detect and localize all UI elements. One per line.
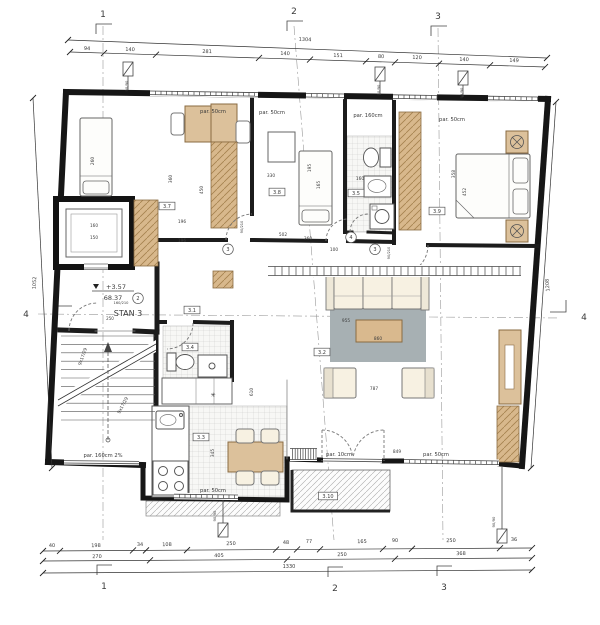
elevator-shaft xyxy=(56,199,132,268)
dim-bottom: 34 xyxy=(137,542,143,548)
wardrobe xyxy=(497,406,519,462)
room-tag: 3.5 xyxy=(352,191,360,197)
window-label: par. 50cm xyxy=(439,117,465,123)
dim-interior: 330 xyxy=(267,173,275,179)
dim-bottom: 40 xyxy=(49,543,55,549)
balcony-floor xyxy=(292,470,390,511)
dresser xyxy=(268,132,295,162)
door-size: 90/210 xyxy=(387,246,391,259)
sofa-armrest xyxy=(421,276,429,310)
room-tag: 3.9 xyxy=(433,209,441,215)
dim-top: 281 xyxy=(202,49,212,55)
apartment-area: 68.37 xyxy=(104,294,123,302)
door-number: 4 xyxy=(349,235,352,241)
elevator-dim: 160 xyxy=(90,223,98,228)
dim-top: 151 xyxy=(333,53,343,59)
elevator-dim: 150 xyxy=(90,235,98,240)
grid-axis-top-2: 2 xyxy=(291,7,297,17)
chair xyxy=(236,471,254,485)
room-tag: 3.3 xyxy=(197,435,205,441)
dim-interior: 358 xyxy=(451,170,457,178)
door-number: 2 xyxy=(136,296,139,302)
room-tag: 3.8 xyxy=(273,190,281,196)
stair-label: 9x17/29 xyxy=(77,347,89,366)
dim-top: 140 xyxy=(280,51,290,57)
dim-interior: 360 xyxy=(168,175,174,183)
room-tag: 3.4 xyxy=(186,345,194,351)
dim-bottom: 198 xyxy=(91,543,101,549)
dim-bottom: 77 xyxy=(306,539,312,545)
dimension-line xyxy=(43,570,532,573)
shower xyxy=(198,355,227,377)
dim-interior: 196 xyxy=(178,238,186,244)
dim-bottom2: 250 xyxy=(337,552,347,558)
dim-interior: 955 xyxy=(342,318,350,324)
window-size: 90/90 xyxy=(376,84,381,96)
exterior-walls xyxy=(48,92,548,500)
window-size: 90/90 xyxy=(212,510,217,522)
bed xyxy=(299,151,332,225)
dim-interior: 787 xyxy=(370,386,378,392)
bench xyxy=(213,271,233,288)
grid-axis-left-4: 4 xyxy=(23,310,29,320)
dim-interior: 160 xyxy=(356,176,364,182)
dim-bottom: 250 xyxy=(226,541,236,547)
dim-interior: 860 xyxy=(374,336,382,342)
dim-bottom: 90 xyxy=(392,538,398,544)
dim-bottom: 250 xyxy=(446,538,456,544)
double-bed xyxy=(456,154,530,218)
dim-bottom2: 368 xyxy=(456,551,466,557)
chair xyxy=(261,429,279,443)
dim-interior: 100 xyxy=(330,247,338,253)
wardrobe xyxy=(211,142,237,228)
room-tag: 3.1 xyxy=(188,308,196,314)
dim-top-total: 1304 xyxy=(299,37,312,43)
window-label: par. 160cm 2% xyxy=(83,453,122,459)
chair xyxy=(236,121,250,143)
room-tag: 3.7 xyxy=(163,204,171,210)
dim-interior: 165 xyxy=(316,181,322,189)
door-arc xyxy=(69,303,97,331)
dining-table xyxy=(228,442,283,472)
dim-bottom: 36 xyxy=(511,537,517,543)
dim-bottom: 165 xyxy=(357,539,367,545)
sofa-cushion xyxy=(363,276,392,309)
cooktop xyxy=(153,461,188,495)
dim-top: 140 xyxy=(459,57,469,63)
window-label: par. 50cm xyxy=(200,488,226,494)
dim-interior: 452 xyxy=(462,188,468,196)
grid-axis-bottom-3: 3 xyxy=(441,583,447,593)
floor-plan-canvas: 1231234413041330105212089414028114015180… xyxy=(0,0,600,625)
wardrobe xyxy=(134,200,158,266)
balcony-door-arc xyxy=(353,430,384,461)
door-number: 3 xyxy=(373,247,376,253)
grid-axis-right-4: 4 xyxy=(581,313,587,323)
dim-interior: 849 xyxy=(393,449,401,455)
chair xyxy=(261,471,279,485)
toilet-tank xyxy=(167,353,176,371)
grid-axis-bottom-1: 1 xyxy=(101,582,107,592)
room-tag: 3.10 xyxy=(322,494,333,500)
sofa-cushion xyxy=(392,276,421,309)
toilet xyxy=(176,355,194,370)
toilet xyxy=(364,148,379,167)
chair xyxy=(236,429,254,443)
chair xyxy=(171,113,184,135)
dim-top: 149 xyxy=(509,58,519,64)
dim-interior: 450 xyxy=(199,186,205,194)
sofa-cushion xyxy=(334,276,363,309)
dim-bottom2: 405 xyxy=(214,553,224,559)
grid-axis-bottom-2: 2 xyxy=(332,584,338,594)
dimension-line xyxy=(70,52,545,67)
dim-left-total: 1052 xyxy=(32,276,39,289)
window-size: 90/90 xyxy=(124,80,129,92)
grid-axis-top-3: 3 xyxy=(435,12,441,22)
dim-interior: 196 xyxy=(178,219,186,225)
dim-interior: 345 xyxy=(210,449,216,457)
window-label: par. 50cm xyxy=(200,109,226,115)
stair-label: 9x17/29 xyxy=(116,396,130,415)
sofa-armrest xyxy=(326,276,334,310)
kitchen-cabinet xyxy=(162,378,232,404)
window-size: 90/90 xyxy=(459,87,464,99)
dim-right-total: 1208 xyxy=(545,279,552,292)
furniture xyxy=(80,104,530,497)
dim-top: 120 xyxy=(412,55,422,61)
dim-bottom: 48 xyxy=(283,540,289,546)
apartment-level: +3.57 xyxy=(106,283,126,291)
dim-bottom-total: 1330 xyxy=(283,564,296,570)
grid-axis-top-1: 1 xyxy=(100,10,106,20)
dim-interior: 502 xyxy=(279,232,287,238)
window-label: par. 50cm xyxy=(423,452,449,458)
dim-bottom: 108 xyxy=(162,542,172,548)
wardrobe xyxy=(399,112,421,230)
washing-machine xyxy=(370,204,394,229)
dim-top: 80 xyxy=(378,54,385,60)
dim-interior: 195 xyxy=(307,164,313,172)
window-label: par. 50cm xyxy=(259,110,285,116)
freezer-icon: ✳ xyxy=(210,392,215,399)
dim-interior: 260 xyxy=(90,157,96,165)
room-tag: 3.2 xyxy=(318,350,326,356)
door-number: 3 xyxy=(226,247,229,253)
door-size: 90/210 xyxy=(240,220,244,233)
dim-top: 94 xyxy=(84,46,91,52)
staircase xyxy=(58,336,156,442)
window-size: 90/90 xyxy=(491,516,496,528)
dim-bottom2: 270 xyxy=(92,554,102,560)
stair-arrow xyxy=(104,342,112,352)
dim-interior: 610 xyxy=(249,388,255,396)
bed xyxy=(80,118,112,196)
window-label: par. 160cm xyxy=(353,113,382,119)
apartment-name: STAN 3 xyxy=(114,309,142,318)
toilet-tank xyxy=(380,148,391,167)
dim-interior: 360 xyxy=(304,236,312,242)
dim-top: 140 xyxy=(125,47,135,53)
window-label: par. 10cm xyxy=(326,452,352,458)
